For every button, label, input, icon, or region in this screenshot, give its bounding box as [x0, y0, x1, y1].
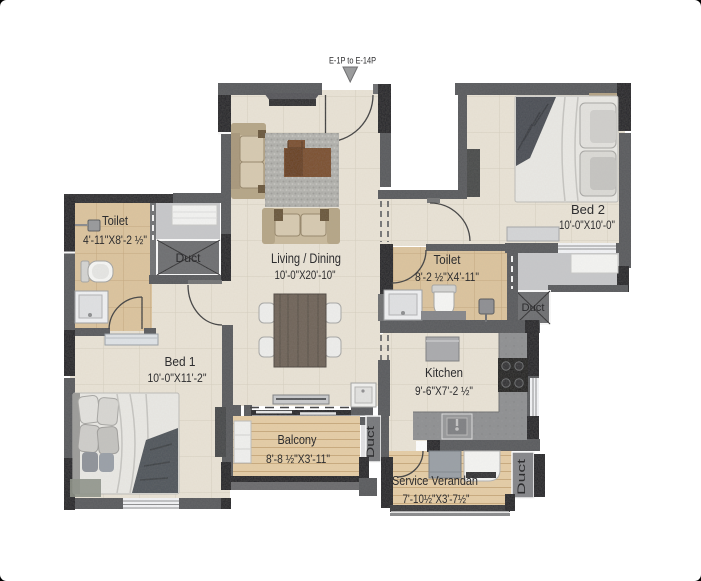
- svg-text:8'-8 ½"X3'-11": 8'-8 ½"X3'-11": [266, 454, 330, 466]
- svg-text:4'-11"X8'-2 ½": 4'-11"X8'-2 ½": [83, 235, 147, 247]
- svg-text:Living / Dining: Living / Dining: [271, 251, 341, 266]
- svg-text:Bed 2: Bed 2: [571, 202, 605, 217]
- svg-text:10'-0"X11'-2": 10'-0"X11'-2": [148, 373, 207, 385]
- svg-text:10'-0"X10'-0": 10'-0"X10'-0": [559, 220, 615, 232]
- svg-text:9'-6"X7'-2 ½": 9'-6"X7'-2 ½": [415, 386, 473, 398]
- svg-text:8'-2 ½"X4'-11": 8'-2 ½"X4'-11": [415, 272, 479, 284]
- svg-text:Duct: Duct: [516, 459, 528, 495]
- svg-text:Toilet: Toilet: [102, 214, 128, 228]
- svg-text:Toilet: Toilet: [434, 253, 461, 267]
- svg-text:Duct: Duct: [522, 302, 545, 314]
- svg-text:Kitchen: Kitchen: [425, 365, 463, 380]
- svg-text:Balcony: Balcony: [278, 433, 318, 447]
- svg-text:Bed 1: Bed 1: [165, 354, 196, 369]
- svg-text:7'-10½"X3'-7½": 7'-10½"X3'-7½": [403, 494, 470, 506]
- svg-text:E-1P to E-14P: E-1P to E-14P: [329, 56, 376, 66]
- svg-text:10'-0"X20'-10": 10'-0"X20'-10": [275, 270, 336, 282]
- svg-text:Service Verandah: Service Verandah: [392, 474, 478, 488]
- svg-text:Duct: Duct: [176, 251, 202, 265]
- svg-text:Duct: Duct: [365, 426, 377, 458]
